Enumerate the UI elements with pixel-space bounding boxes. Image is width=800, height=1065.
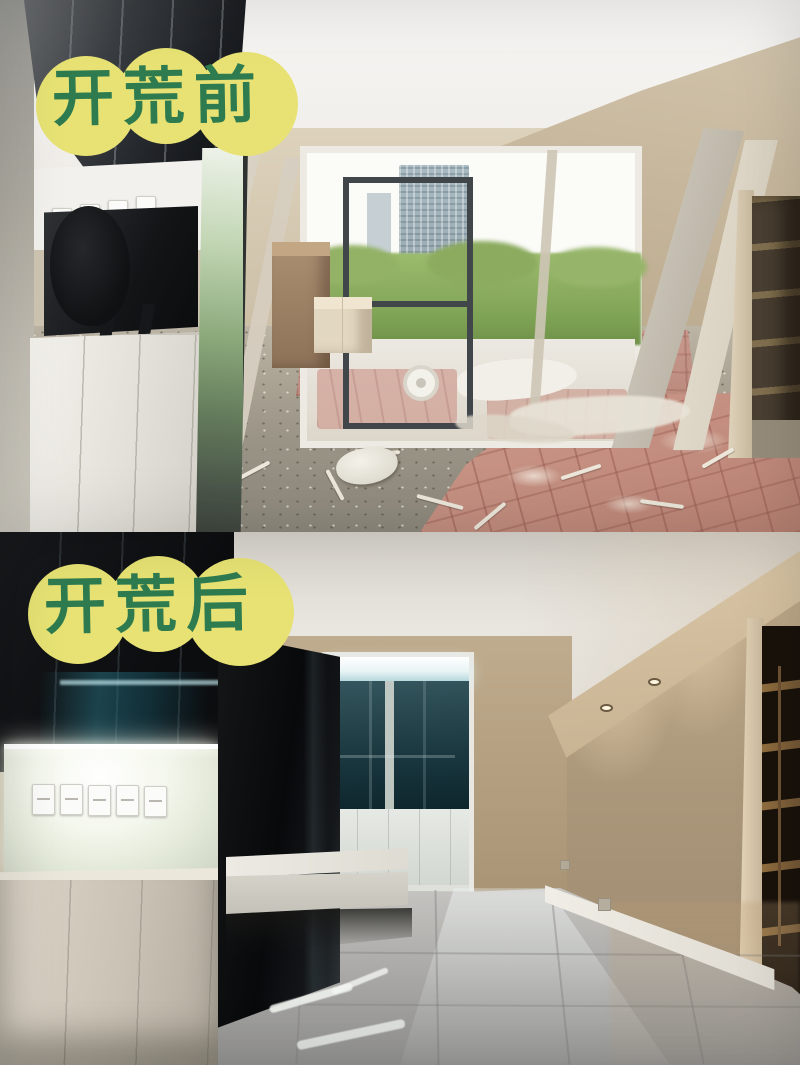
badge-before-text: 开荒前 [51, 64, 282, 130]
photo-after: 开荒后 [0, 532, 800, 1065]
tv-gloss-panel [218, 628, 340, 1040]
glass-pane-line [369, 681, 372, 809]
cream-cabinet [0, 880, 218, 1065]
bookshelf-room [752, 196, 800, 458]
glass-reflection [335, 755, 455, 758]
mirror-strip [196, 148, 248, 532]
lit-niche [4, 744, 218, 874]
wood-shelf [762, 859, 800, 872]
box-flap [314, 297, 372, 309]
switch-panel [32, 784, 55, 815]
wood-shelf [762, 679, 800, 692]
switch-panel [88, 785, 111, 816]
white-cabinet [30, 332, 202, 532]
wood-shelf [762, 797, 800, 810]
tree-blob [547, 247, 647, 287]
led-strip [327, 657, 469, 681]
left-wall-edge [0, 0, 34, 532]
wall-outlet [598, 898, 611, 911]
wall-outlet [560, 860, 570, 870]
wood-shelf [762, 739, 800, 752]
electric-fan [403, 365, 439, 401]
switch-panel [116, 785, 139, 816]
niche-led-strip [4, 744, 218, 749]
collage-canvas: 开荒前 [0, 0, 800, 1065]
balcony-glass [327, 681, 469, 809]
shelf-room-floor [752, 420, 800, 458]
badge-before: 开荒前 [36, 46, 298, 164]
switch-panel [60, 784, 83, 815]
photo-before: 开荒前 [0, 0, 800, 532]
cardboard-top [272, 242, 330, 256]
recessed-spotlight [648, 678, 661, 686]
glass-pane-line [423, 681, 426, 809]
box-seam [342, 297, 343, 353]
door-mullion [385, 681, 394, 809]
badge-after-text: 开荒后 [43, 572, 274, 638]
badge-after: 开荒后 [28, 554, 290, 672]
led-reflection [60, 680, 234, 685]
fan-hub [416, 378, 426, 388]
recessed-spotlight [600, 704, 613, 712]
cardboard-box [314, 297, 372, 353]
switch-panel [144, 786, 167, 817]
hanging-bag [50, 206, 130, 326]
